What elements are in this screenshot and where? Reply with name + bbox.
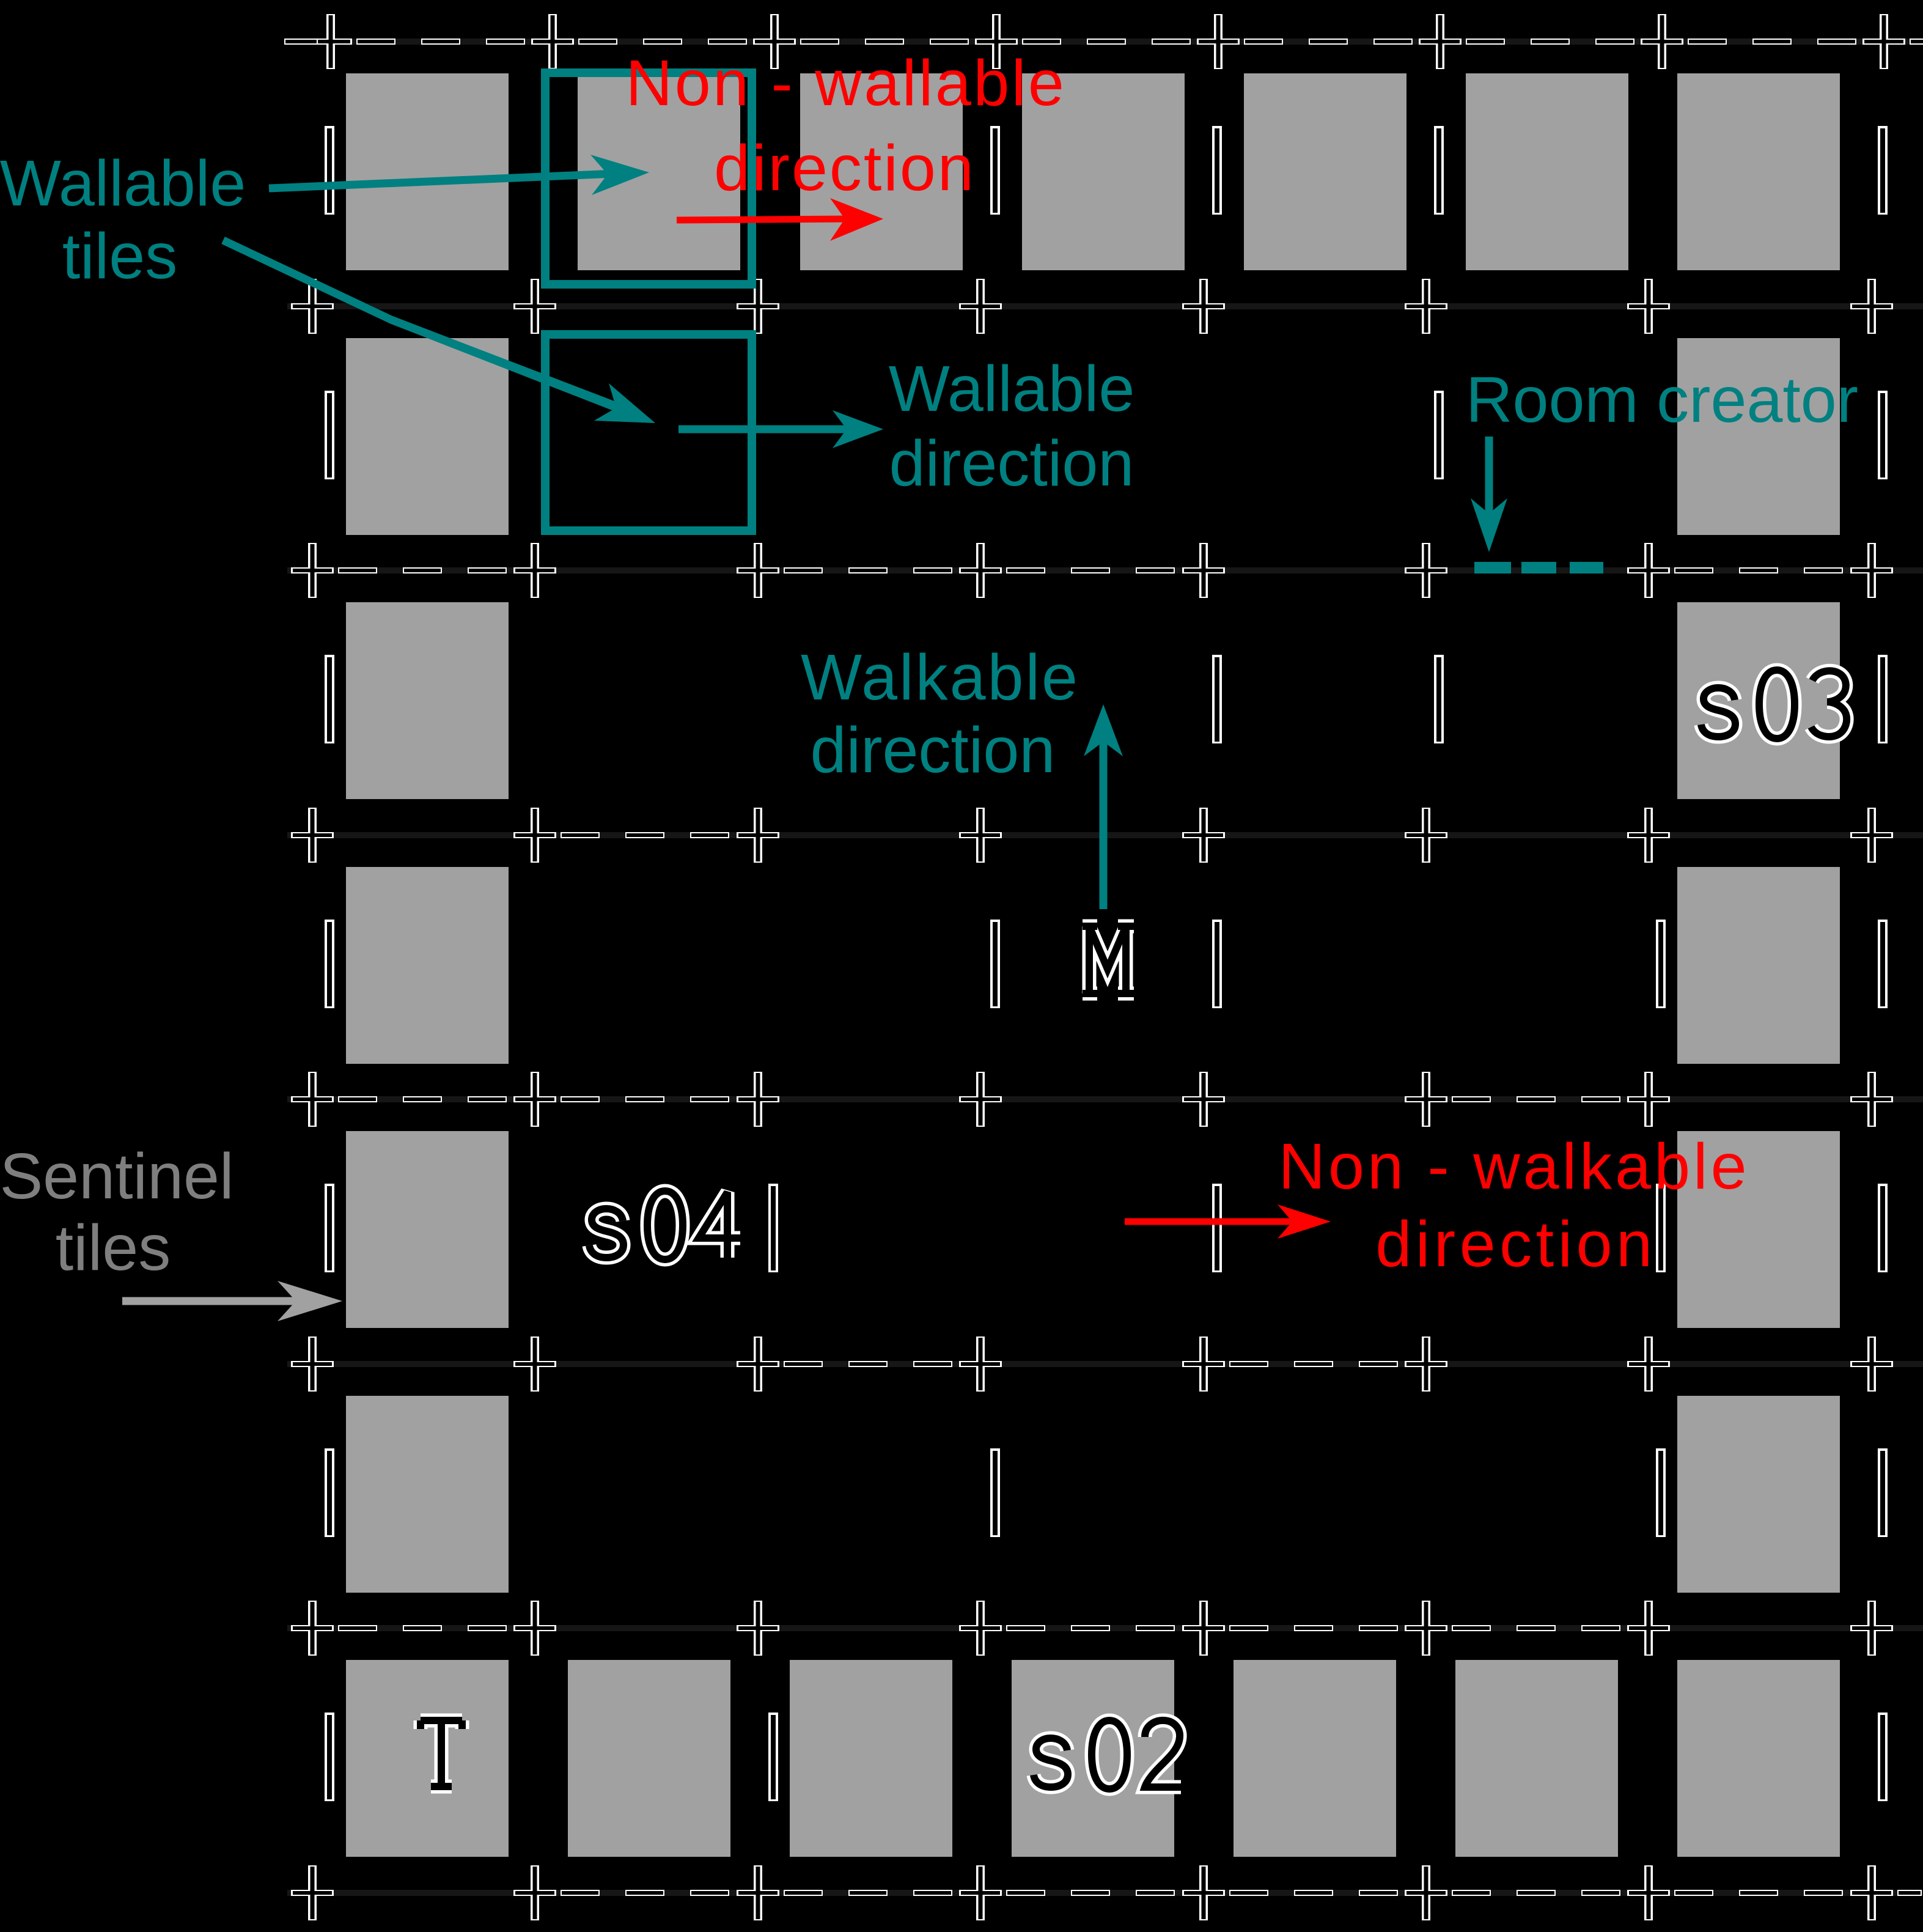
svg-text:Room creator: Room creator	[1466, 364, 1858, 436]
svg-text:Wallable: Wallable	[889, 353, 1135, 425]
svg-text:Sentinel: Sentinel	[0, 1140, 234, 1212]
svg-text:Walkable: Walkable	[801, 641, 1079, 713]
svg-text:tiles: tiles	[56, 1212, 171, 1284]
svg-text:direction: direction	[714, 132, 976, 204]
svg-text:tiles: tiles	[62, 220, 178, 292]
svg-text:direction: direction	[1375, 1208, 1656, 1280]
svg-text:Wallable: Wallable	[0, 147, 246, 219]
svg-text:Non - walkable: Non - walkable	[1278, 1130, 1749, 1203]
svg-text:direction: direction	[811, 714, 1056, 786]
svg-text:direction: direction	[889, 427, 1134, 500]
svg-text:Non - wallable: Non - wallable	[626, 47, 1067, 119]
